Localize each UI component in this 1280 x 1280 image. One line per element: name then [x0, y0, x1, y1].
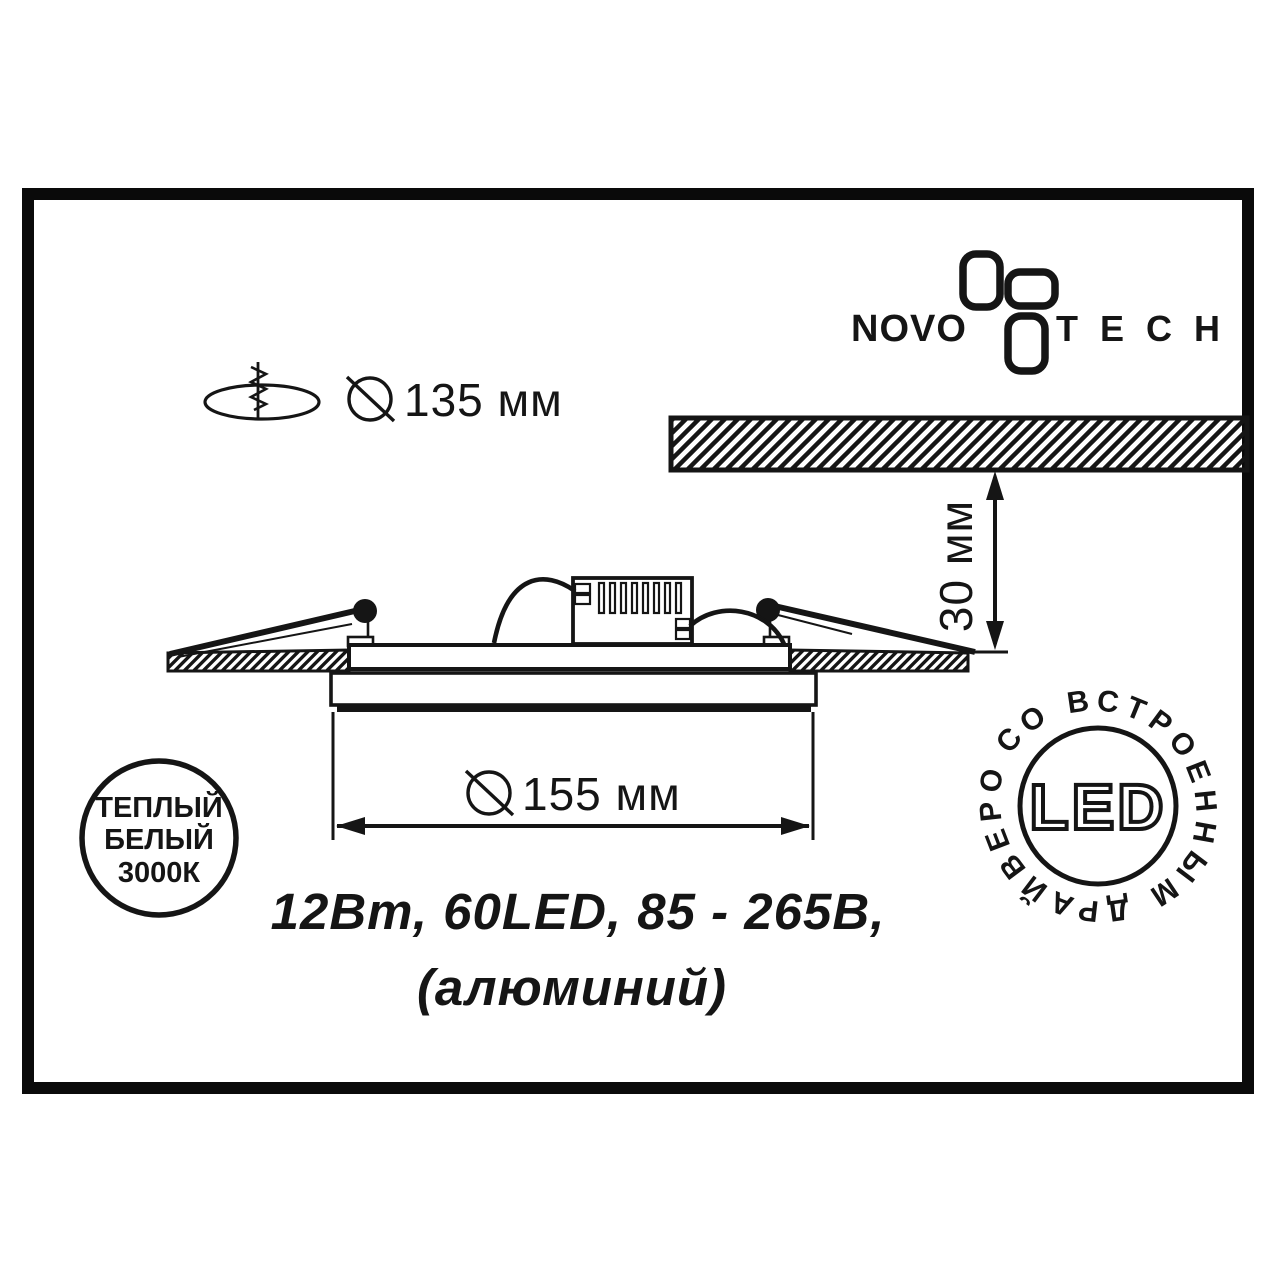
ceiling-section — [671, 418, 1247, 470]
warm-white-badge: ТЕПЛЫЙ БЕЛЫЙ 3000К — [82, 761, 236, 915]
driver-terminal-right — [676, 619, 690, 628]
warm-white-line-3: 3000К — [118, 857, 201, 889]
spec-line-2: (алюминий) — [417, 959, 727, 1016]
warm-white-line-2: БЕЛЫЙ — [104, 822, 214, 856]
driver-terminal-left — [575, 584, 590, 593]
product-spec-sheet: NOVO TECH 135 мм 30 мм — [0, 0, 1280, 1280]
warm-white-line-1: ТЕПЛЫЙ — [95, 790, 222, 824]
recess-depth-label: 30 мм — [930, 500, 982, 632]
right-mounting-flange — [790, 650, 968, 671]
led-label: LED — [1030, 771, 1167, 843]
ceiling-hatch — [671, 418, 1247, 470]
fixture-glass-line — [337, 705, 811, 712]
diagram-svg: NOVO TECH 135 мм 30 мм — [0, 0, 1280, 1280]
fixture-trim-ring — [331, 673, 816, 705]
cutout-diameter-label: 135 мм — [404, 374, 563, 426]
logo-text-tech: TECH — [1056, 308, 1242, 349]
spec-line-1: 12Вт, 60LED, 85 - 265В, — [271, 883, 886, 940]
fixture-top-plate — [349, 645, 790, 669]
body-diameter-label: 155 мм — [522, 768, 681, 820]
